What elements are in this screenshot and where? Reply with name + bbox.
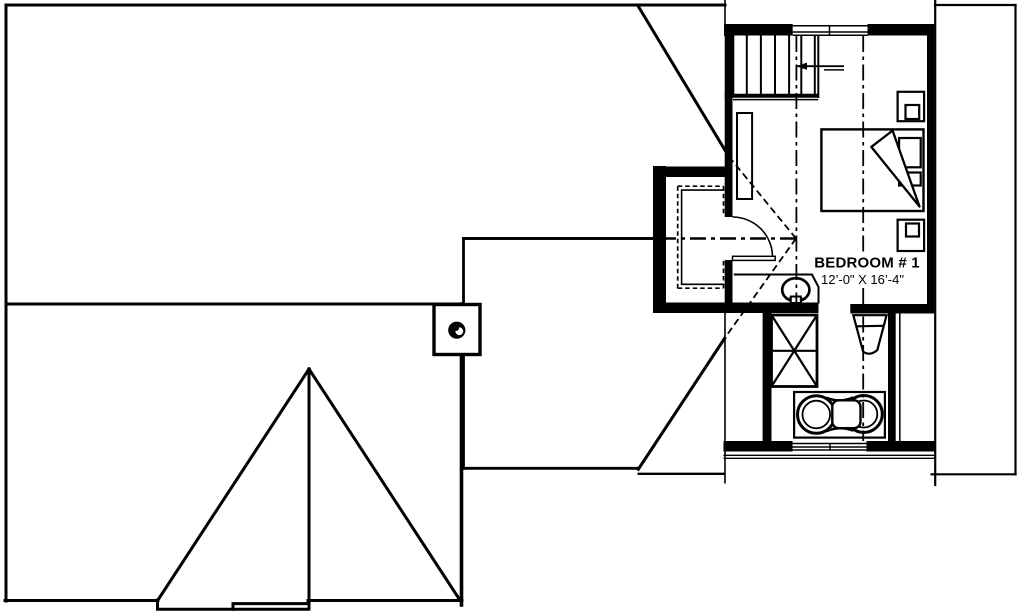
svg-text:12’-0" X 16’-4": 12’-0" X 16’-4" <box>821 272 904 287</box>
svg-text:BEDROOM # 1: BEDROOM # 1 <box>814 254 920 271</box>
